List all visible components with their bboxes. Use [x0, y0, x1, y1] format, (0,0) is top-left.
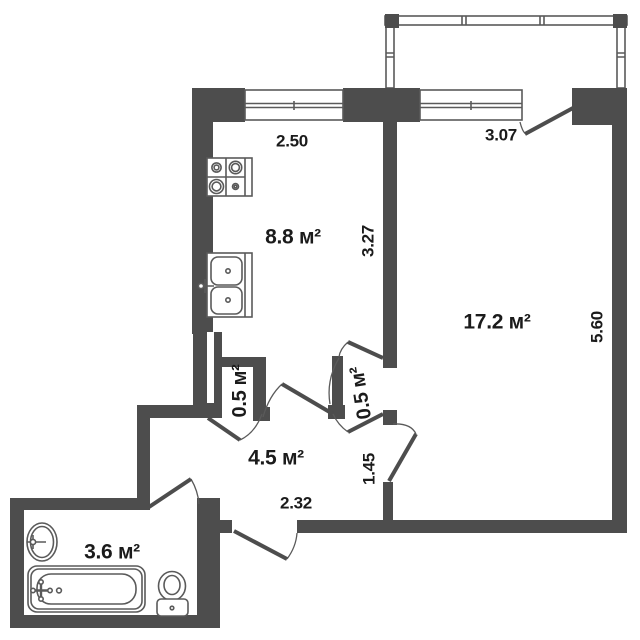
- living-room-area-label: 17.2 м²: [463, 312, 530, 333]
- dimension-living-window: 3.07: [485, 127, 517, 144]
- kitchen-area-label: 8.8 м²: [265, 227, 321, 248]
- bathroom-sink-icon: [27, 523, 57, 561]
- balcony-railing: [385, 16, 627, 88]
- kitchen-door: [263, 384, 333, 417]
- wall-bath-right: [197, 498, 220, 628]
- dimension-hallway-width: 2.32: [280, 495, 312, 512]
- wall-entrance-stub: [220, 520, 232, 533]
- bathroom-door: [149, 479, 199, 507]
- stove-icon: [207, 158, 252, 196]
- wall-hall-west: [137, 405, 150, 510]
- wall-bath-bottom: [10, 615, 220, 628]
- closet-left-right-wall: [253, 357, 266, 408]
- dimension-kitchen-window: 2.50: [276, 133, 308, 150]
- entrance-door: [234, 531, 297, 559]
- bathtub-icon: [28, 566, 145, 612]
- wall-hall-north: [137, 405, 222, 418]
- dimension-living-depth: 5.60: [589, 311, 606, 343]
- wall-central-block-b: [383, 410, 397, 425]
- wall-bath-left: [10, 498, 24, 628]
- wall-bottom: [297, 520, 627, 533]
- kitchen-sink-icon: [198, 253, 252, 317]
- dimension-hallway-depth: 1.45: [361, 453, 378, 485]
- living-room-window: [420, 90, 522, 120]
- wall-bath-top: [10, 498, 148, 510]
- wall-central-stub: [383, 482, 393, 520]
- hallway-area-label: 4.5 м²: [248, 448, 304, 469]
- vent-shaft-slot: [207, 332, 214, 403]
- wall-right: [612, 107, 627, 533]
- toilet-icon: [157, 572, 188, 617]
- wall-central-block-a: [383, 357, 397, 368]
- living-room-door: [389, 424, 416, 481]
- wall-central: [383, 122, 397, 357]
- dimension-kitchen-depth: 3.27: [360, 225, 377, 257]
- wall-top-between-windows: [343, 88, 420, 122]
- kitchen-window: [245, 90, 343, 120]
- bathroom-area-label: 3.6 м²: [84, 542, 140, 563]
- floor-plan: 8.8 м² 17.2 м² 4.5 м² 3.6 м² 0.5 м² 0.5 …: [0, 0, 640, 640]
- closet-left-area-label: 0.5 м²: [230, 364, 250, 417]
- balcony-door: [520, 108, 573, 134]
